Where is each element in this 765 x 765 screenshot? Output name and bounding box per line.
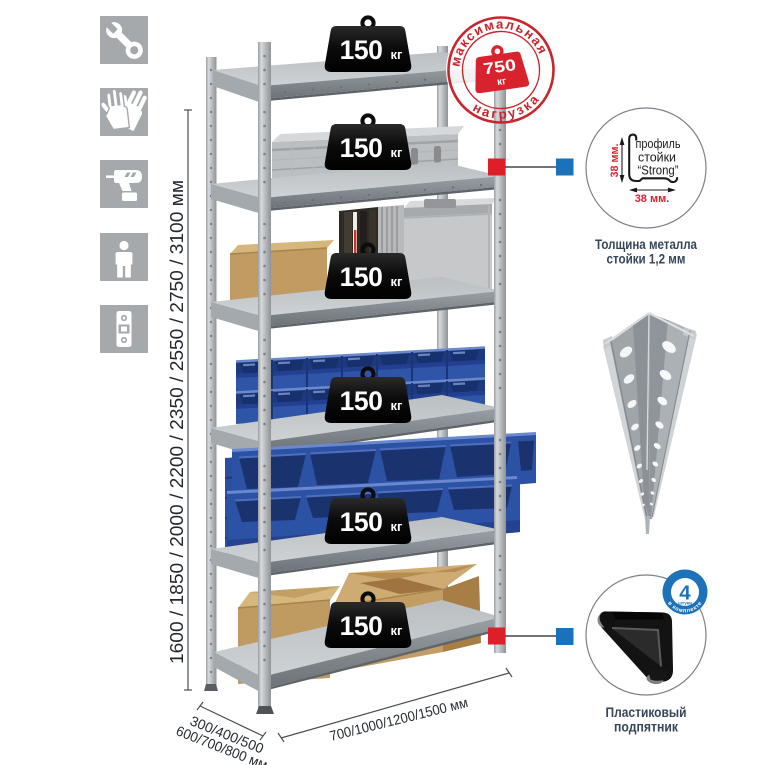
svg-text:штуки: штуки	[678, 601, 692, 606]
svg-text:профиль: профиль	[636, 137, 681, 151]
svg-text:38 мм.: 38 мм.	[609, 144, 621, 178]
svg-text:Толщина металла: Толщина металла	[595, 237, 697, 252]
svg-text:стойки: стойки	[638, 151, 676, 165]
svg-text:стойки 1,2 мм: стойки 1,2 мм	[607, 252, 686, 267]
svg-text:“Strong”: “Strong”	[638, 164, 679, 178]
svg-text:кг: кг	[496, 76, 507, 88]
svg-text:подпятник: подпятник	[614, 719, 679, 735]
svg-text:38 мм.: 38 мм.	[635, 193, 670, 205]
svg-text:1600 / 1850 / 2000 / 2200 / 23: 1600 / 1850 / 2000 / 2200 / 2350 / 2550 …	[167, 180, 187, 664]
